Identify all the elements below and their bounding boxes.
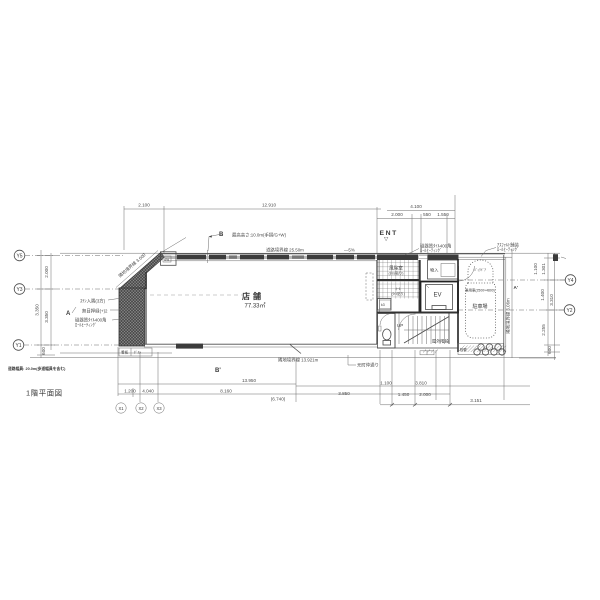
svg-text:(6.740): (6.740) [271, 397, 286, 402]
svg-text:600: 600 [547, 346, 552, 354]
svg-text:乗用車(2500×4800): 乗用車(2500×4800) [465, 288, 495, 293]
svg-text:A': A' [514, 285, 518, 290]
svg-text:4.100: 4.100 [410, 204, 422, 209]
svg-text:3.350: 3.350 [35, 304, 40, 316]
svg-text:X1: X1 [118, 406, 124, 411]
svg-text:1.301: 1.301 [541, 263, 546, 275]
svg-text:駐車場: 駐車場 [472, 303, 487, 310]
svg-text:(ﾀｲﾙ貼り): (ﾀｲﾙ貼り) [389, 271, 404, 276]
svg-text:550: 550 [423, 212, 431, 217]
svg-text:風除室: 風除室 [389, 265, 403, 272]
svg-text:3.810: 3.810 [415, 381, 427, 386]
svg-text:最高高さ:10.0m(手摺/G+W): 最高高さ:10.0m(手摺/G+W) [232, 232, 287, 239]
svg-text:1.200: 1.200 [124, 389, 136, 394]
svg-text:看板: 看板 [121, 350, 129, 355]
svg-text:Y2: Y2 [566, 308, 572, 314]
svg-text:3.151: 3.151 [470, 398, 482, 403]
svg-text:X2: X2 [138, 406, 144, 411]
svg-text:3.850: 3.850 [338, 391, 350, 396]
svg-text:2.000: 2.000 [419, 392, 431, 397]
svg-text:道路境界線 25.50m: 道路境界線 25.50m [266, 247, 304, 254]
svg-text:店舗: 店舗 [242, 291, 264, 301]
svg-text:道路幅員: 20.0m(歩道幅員を含む): 道路幅員: 20.0m(歩道幅員を含む) [8, 366, 66, 371]
svg-text:EV: EV [434, 293, 442, 299]
svg-text:5%: 5% [164, 258, 169, 262]
svg-text:元町仲通り: 元町仲通り [357, 362, 379, 369]
svg-text:B: B [219, 232, 224, 238]
svg-text:4.040: 4.040 [142, 389, 154, 394]
svg-text:物入: 物入 [430, 267, 439, 274]
svg-text:A: A [66, 311, 71, 317]
svg-text:B': B' [215, 368, 221, 374]
svg-text:隣地境界線 13.921m: 隣地境界線 13.921m [278, 357, 319, 364]
svg-text:ﾊﾞｯｸﾄﾞｱ: ﾊﾞｯｸﾄﾞｱ [474, 267, 486, 272]
svg-text:ENT: ENT [380, 230, 398, 237]
svg-text:ｽﾃﾝ入隅(3方): ｽﾃﾝ入隅(3方) [80, 298, 106, 305]
svg-text:(ﾀｲﾙ貼り): (ﾀｲﾙ貼り) [391, 291, 404, 296]
svg-text:77.33㎡: 77.33㎡ [244, 302, 265, 310]
svg-text:隣地境界線 6.06m: 隣地境界線 6.06m [505, 298, 512, 334]
svg-text:3.310: 3.310 [549, 294, 554, 306]
svg-text:ﾎｰﾙ: ﾎｰﾙ [395, 287, 400, 291]
svg-text:屋外階段: 屋外階段 [432, 338, 450, 345]
svg-text:2.000: 2.000 [391, 212, 403, 217]
svg-text:―5%: ―5% [344, 248, 355, 253]
svg-text:Y4: Y4 [567, 278, 573, 284]
svg-text:ﾛｰﾙﾋｰﾃｨﾝｸﾞ: ﾛｰﾙﾋｰﾃｨﾝｸﾞ [420, 247, 442, 254]
svg-text:600: 600 [41, 347, 46, 355]
svg-text:8.160: 8.160 [220, 389, 232, 394]
svg-text:1.450: 1.450 [398, 392, 410, 397]
svg-text:Y3: Y3 [16, 287, 22, 293]
svg-text:1階平面図: 1階平面図 [26, 389, 63, 398]
svg-text:無目押緑(+)2: 無目押緑(+)2 [82, 308, 108, 315]
svg-text:Y1: Y1 [15, 343, 21, 349]
svg-text:ﾎﾟｽﾄ: ﾎﾟｽﾄ [134, 350, 141, 355]
svg-text:13.950: 13.950 [242, 378, 256, 383]
svg-text:12.910: 12.910 [262, 203, 276, 208]
svg-text:k3: k3 [381, 303, 385, 307]
svg-text:Y5: Y5 [16, 253, 22, 259]
svg-text:ﾛｰﾙﾋｰﾃｨﾝｸﾞ: ﾛｰﾙﾋｰﾃｨﾝｸﾞ [497, 246, 519, 253]
svg-text:1.100: 1.100 [380, 381, 392, 386]
svg-text:1.400: 1.400 [540, 289, 545, 301]
svg-text:2.000: 2.000 [44, 266, 49, 278]
svg-text:2.255: 2.255 [541, 324, 546, 336]
svg-text:ﾛｰﾙﾋｰﾃｨﾝｸﾞ: ﾛｰﾙﾋｰﾃｨﾝｸﾞ [75, 322, 97, 329]
svg-text:1.550: 1.550 [437, 212, 449, 217]
svg-text:X3: X3 [156, 406, 162, 411]
svg-text:3.350: 3.350 [44, 311, 49, 323]
svg-text:1.100: 1.100 [533, 263, 538, 275]
svg-text:2.100: 2.100 [138, 203, 150, 208]
